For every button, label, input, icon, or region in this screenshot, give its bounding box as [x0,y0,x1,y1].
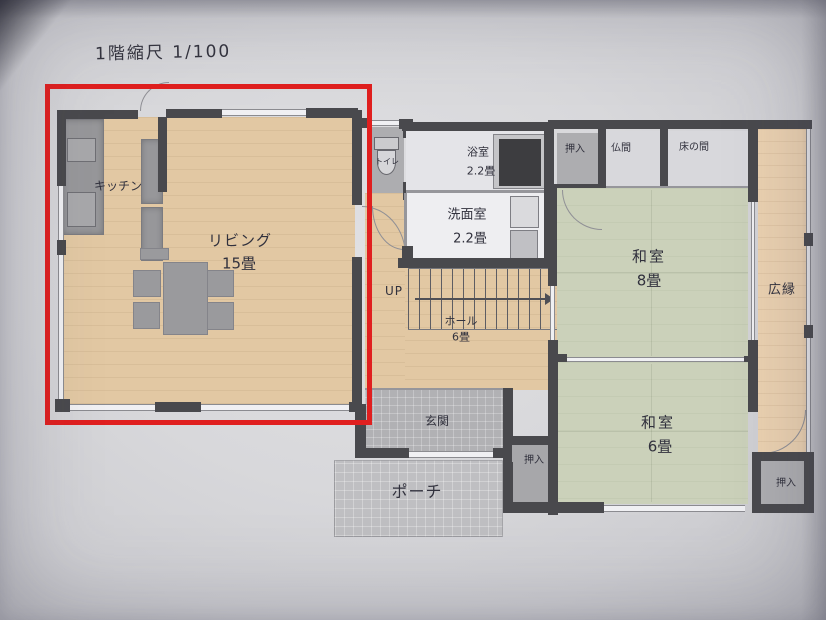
wall-segment [548,186,557,286]
sliding-door [751,202,755,340]
hall-size-label: 6畳 [452,332,470,343]
room-tokonoma-floor [668,131,748,186]
wall-segment [752,504,814,513]
washing-machine [510,230,538,260]
wall-segment [748,358,758,412]
room-closet-top-floor [557,133,598,184]
room-closet-mid-floor [512,445,548,503]
wall-segment [748,124,758,186]
wall-segment [804,325,813,338]
washbasin [510,196,539,228]
closet-br-label: 押入 [776,479,796,489]
porch-label: ポーチ [391,484,442,500]
wall-segment [660,129,668,186]
plan-title: 1階縮尺 1/100 [95,37,232,65]
sliding-door [550,286,555,340]
wall-segment [355,448,409,458]
window [806,338,811,452]
wall-segment [398,258,562,268]
washroom-label: 洗面室 [447,209,486,222]
washitsu8-size-label: 8畳 [637,274,662,289]
toilet-label: トイレ [375,158,399,166]
genkan-label: 玄関 [425,415,449,427]
tokonoma-label: 床の間 [679,143,709,153]
window [806,246,811,325]
wall-segment [503,502,560,513]
wall-segment [503,462,513,503]
floor-plan-photo: 1階縮尺 1/100 キッチン リビング 15畳 トイレ [0,0,826,620]
toilet-fixture [374,137,399,150]
window [604,505,745,512]
entrance-sliding-door [409,451,493,458]
room-washitsu6-floor [558,362,748,504]
wall-segment [598,129,606,186]
wall-segment [804,233,813,246]
bath-size-label: 2.2畳 [467,166,496,177]
window [371,120,401,126]
washroom-size-label: 2.2畳 [453,233,487,246]
washitsu6-label: 和室 [641,416,675,431]
window [806,129,811,233]
tatami-line [651,364,652,502]
washitsu6-size-label: 6畳 [648,440,673,455]
wall-segment [748,186,758,202]
highlight-rectangle [45,84,372,425]
bath-label: 浴室 [467,147,489,158]
stairs-up-label: UP [385,285,403,297]
hiroen-label: 広縁 [768,284,796,297]
wall-segment [512,436,558,445]
wall-segment [548,120,812,129]
wall-segment [402,122,554,131]
bathtub [499,139,541,186]
butsuma-label: 仏間 [611,144,631,154]
room-butsuma-floor [606,131,660,186]
closet-mid-label: 押入 [524,456,544,466]
hall-label: ホール [445,316,478,327]
closet-top-label: 押入 [565,145,585,155]
washitsu8-label: 和室 [632,250,666,265]
stairs-direction-arrow [415,298,547,300]
